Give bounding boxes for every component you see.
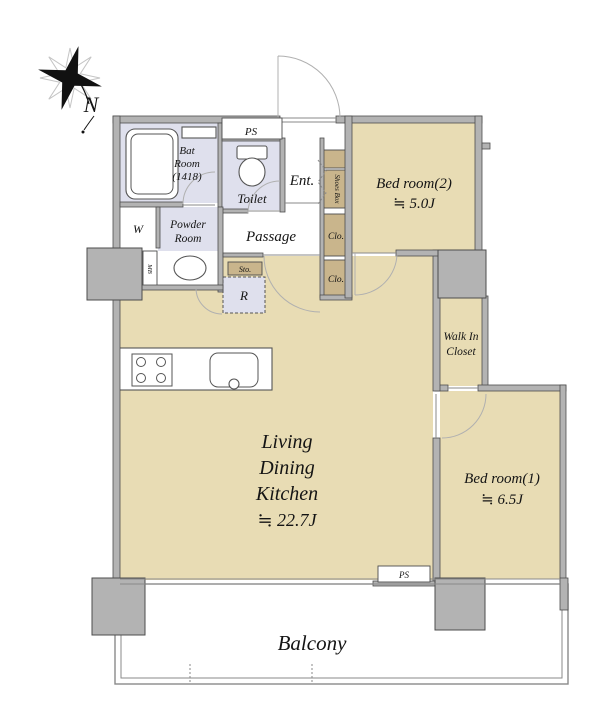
- bath-counter: [182, 127, 216, 138]
- ldk-label-1: Living: [260, 431, 312, 453]
- shoes-box-label: Shoes Box: [333, 175, 341, 205]
- powder-sink: [174, 256, 206, 280]
- wic-label-1: Walk In: [443, 331, 478, 343]
- pillar: [92, 578, 145, 635]
- meter-box-label: MB: [146, 263, 153, 273]
- refrigerator-label: R: [239, 288, 248, 303]
- bath-label-1: Bat: [179, 145, 195, 157]
- bath-label-2: Room: [173, 158, 200, 170]
- bathtub: [126, 129, 178, 199]
- ldk-label-2: Dining: [258, 457, 315, 479]
- entrance-label: Ent.: [289, 173, 315, 189]
- pillar: [87, 248, 142, 300]
- bedroom2-name: Bed room(2): [376, 176, 452, 192]
- pillar: [435, 578, 485, 630]
- bedroom2-size: ≒ 5.0J: [393, 196, 436, 212]
- balcony-label: Balcony: [278, 631, 347, 655]
- sink-faucet: [229, 379, 239, 389]
- pillar: [438, 250, 486, 298]
- entrance-door-arc: [278, 56, 340, 118]
- ldk-size: ≒ 22.7J: [257, 510, 317, 530]
- toilet-label: Toilet: [237, 191, 267, 206]
- toilet-tank: [237, 146, 267, 159]
- washer-label: W: [133, 222, 144, 236]
- ps-top-label: PS: [244, 126, 258, 138]
- compass-tail-dot: [82, 131, 85, 134]
- bedroom1-size: ≒ 6.5J: [481, 492, 524, 508]
- powder-label-2: Room: [174, 233, 202, 245]
- storage-label: Sto.: [239, 265, 251, 274]
- bath-label-3: (1418): [172, 171, 202, 183]
- ps-bottom-label: PS: [398, 570, 409, 580]
- compass-tail: [84, 116, 94, 130]
- closet2-label: Clo.: [328, 275, 344, 285]
- bedroom1-name: Bed room(1): [464, 471, 540, 487]
- toilet-bowl: [239, 158, 265, 186]
- powder-label-1: Powder: [169, 219, 206, 231]
- floor-plan-drawing: N Bat Room (1418) PS Toilet Ent. Shoes B…: [0, 0, 600, 720]
- floor-plan-page: N Bat Room (1418) PS Toilet Ent. Shoes B…: [0, 0, 600, 720]
- entrance-floor: [283, 123, 322, 213]
- passage-label: Passage: [245, 229, 296, 245]
- compass-rose: N: [38, 46, 102, 133]
- entrance-opening: [280, 118, 336, 122]
- ldk-label-3: Kitchen: [255, 483, 318, 505]
- ldk-floor: [120, 256, 433, 580]
- wic-label-2: Closet: [446, 346, 476, 358]
- compass-north-label: N: [83, 92, 100, 117]
- closet1-label: Clo.: [328, 232, 344, 242]
- shoes-box-upper: [323, 150, 347, 168]
